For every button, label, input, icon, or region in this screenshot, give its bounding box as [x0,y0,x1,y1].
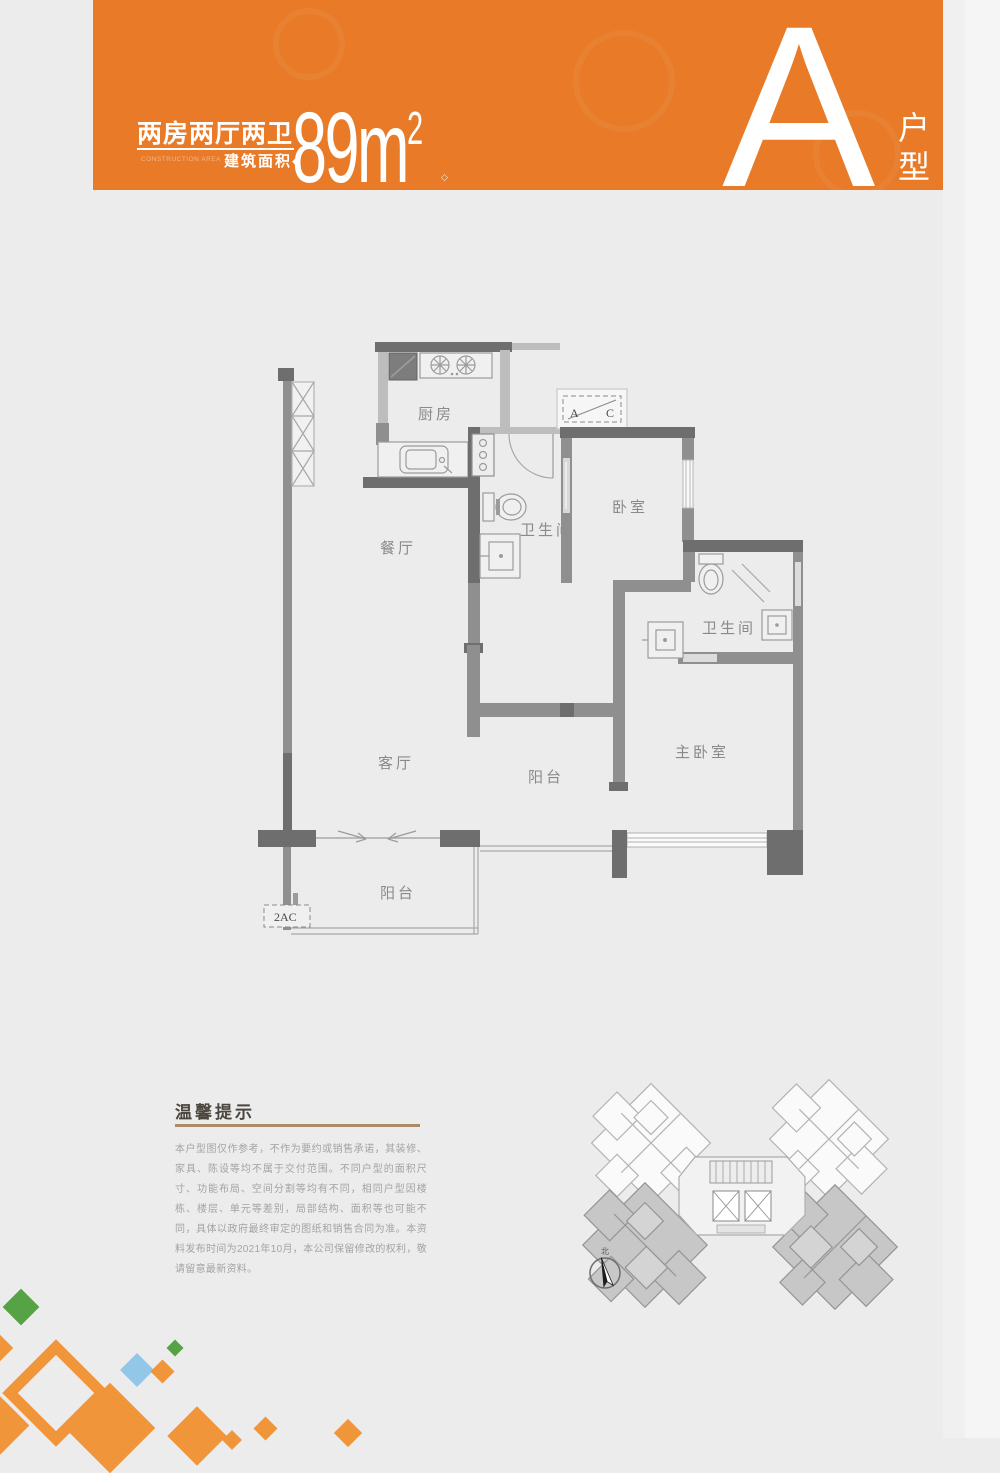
compass-north-label: 北 [601,1247,609,1256]
reg-mark-icon: ◇ [441,172,448,183]
stove-icon [420,353,492,378]
decor-diamond-green-small [167,1340,184,1357]
ac-marker-c: C [606,406,614,420]
decor-diamond-left-partial [0,1327,13,1369]
bath1-door-arc [509,434,553,478]
area-caption-en: CONSTRUCTION AREA [141,156,227,163]
right-strip-inner [943,0,965,1438]
shower-screen-icon [732,564,770,602]
room-label-master: 主卧室 [675,744,729,761]
decor-diamond-small [253,1416,277,1440]
decor-diamond-small [334,1419,362,1447]
bedroom-window [683,460,693,508]
unit-label: 户 型 [898,112,930,183]
area-caption-cn: 建筑面积◆ [224,150,301,171]
ac-marker-a: A [570,406,579,420]
room-label-bath2: 卫生间 [702,620,756,637]
room-label-kitchen: 厨房 [418,406,454,423]
ac-marker-top: A C [557,389,627,429]
bath2-sink-icon [762,610,792,640]
bedroom-walls [560,427,695,791]
hallway-wall [480,427,560,434]
kitchen-sink-icon [378,442,468,477]
room-label-bedroom: 卧室 [612,499,648,516]
unit-letter: A [720,0,910,190]
decor-diamond-green [3,1289,40,1326]
laundry-cabinet-icon [472,434,494,476]
tips-body: 本户型图仅作参考，不作为要约或销售承诺，其装修、家具、陈设等均不属于交付范围。不… [175,1140,427,1280]
decor-diamond-orange-small [150,1359,174,1383]
room-label-living: 客厅 [378,755,414,772]
floorplan-page: { "colors":{ "accent":"#e87a28","diamond… [0,0,1000,1438]
decor-diamond-blue [120,1353,154,1387]
decor-diamond-medium [167,1406,226,1465]
core-block [679,1157,805,1235]
area-superscript: 2 [407,102,423,154]
watermark-ring-icon [273,8,345,80]
header-banner: 两房两厅两卫 CONSTRUCTION AREA 建筑面积◆ 89m2 ◇ A … [93,0,943,190]
t-wall [464,643,613,737]
wall-block [440,830,480,847]
balcony-door [316,831,440,842]
master-window [612,830,803,878]
watermark-ring-icon [573,30,675,132]
tips-title: 温馨提示 [175,1098,255,1123]
fridge-icon [389,353,417,380]
shower-icon [480,534,520,578]
toilet-icon [483,493,526,521]
room-label-balcony-right: 阳台 [528,769,564,786]
decor-diamond-tiny [222,1430,242,1450]
right-strip-outer [965,0,1000,1438]
svg-text:A: A [722,0,875,190]
vent-shaft [292,382,314,486]
layout-type-title: 两房两厅两卫 [137,114,293,150]
floor-plan: 厨房 卫生间 餐厅 A C [250,330,810,950]
site-key-plan: 北 [575,1065,905,1325]
bath2-walls [678,540,803,840]
area-value: 89m2 [292,82,423,190]
room-label-dining: 餐厅 [380,540,416,557]
vanity-sink-icon [642,622,683,658]
room-label-balcony-bottom: 阳台 [380,885,416,902]
tips-underline [175,1124,420,1127]
toilet-icon [699,554,723,594]
balcony-right-railing [480,846,613,851]
ac-count-label: 2AC [274,910,297,924]
